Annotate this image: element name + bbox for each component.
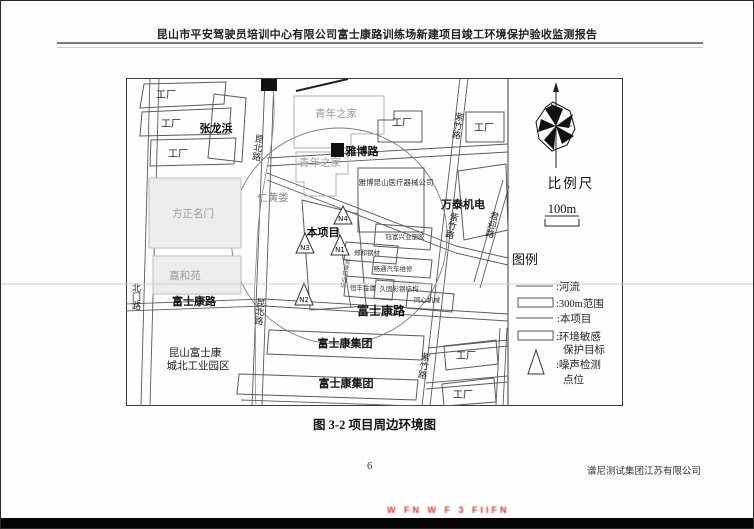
label-foxconn-group-2: 富士康集团 [319,376,374,390]
footer-company-name: 谱尼测试集团江苏有限公司 [587,463,701,477]
label-yufu-plastics: 钰富兴业塑胶 [386,232,426,241]
label-jiaheyuan: 嘉和苑 [169,269,201,282]
label-zhenghe-steel: 郑和钢材 [354,248,381,257]
north-compass-icon [536,82,575,168]
label-foxconn-park-line2: 城北工业园区 [167,360,230,372]
report-header-title: 昆山市平安驾驶员培训中心有限公司富士康路训练场新建项目竣工环境保护验收监测报告 [41,26,713,42]
scan-fold-line [1,283,754,285]
map-legend: 图例 :河流 :300m范围 :本项目 :环境敏感 保护目标 :噪声检测 点位 [512,252,605,386]
label-jiugu-steel: 久固彩钢结构 [380,284,420,293]
noise-point-n3-label: N3 [300,244,310,252]
label-yabo-road: 雅博路 [346,144,380,158]
label-wantai-electric: 万泰机电 [440,197,485,211]
report-page: 昆山市平安驾驶员培训中心有限公司富士康路训练场新建项目竣工环境保护验收监测报告 [0,0,754,529]
legend-noise-label-1: :噪声检测 [556,358,601,371]
legend-range-symbol [518,298,553,307]
figure-caption: 图 3-2 项目周边环境图 [126,414,623,433]
label-factory-se1: 工厂 [456,351,476,362]
legend-project-label: :本项目 [557,312,591,325]
label-fangzheng-mingmen: 方正名门 [172,207,214,220]
legend-river-label: :河流 [556,280,580,293]
scale-bar-distance: 100m [548,202,577,216]
label-youth-home-top: 青年之家 [315,107,357,120]
legend-noise-label-2: 点位 [563,373,584,386]
legend-sensitive-label-1: :环境敏感 [556,330,601,343]
label-tongxin-machinery: 同心机械 [414,295,441,304]
page-number: 6 [367,461,372,472]
label-factory-nw3: 工厂 [168,149,188,160]
site-map-figure: N4 N3 N1 N2 工厂 工厂 工厂 张龙浜 青年之家 工厂 工厂 青年之家… [126,78,623,406]
scale-bar-title: 比例尺 [548,176,595,191]
label-beimen-road: 北门路 [131,283,141,311]
label-medical-company: 雅博昆山医疗器械公司 [359,177,434,187]
label-factory-nw2: 工厂 [161,119,181,130]
label-project-site: 本项目 [307,225,340,239]
label-fushikang-road-right: 富士康路 [357,303,406,318]
label-zizhu-road-bottom: 紫竹路 [416,351,431,380]
bridge-block-top [261,79,277,91]
label-fushikang-road-left: 富士康路 [172,294,217,308]
legend-title: 图例 [512,252,538,267]
label-foxconn-park-line1: 昆山富士康 [169,346,222,359]
label-factory-mid: 工厂 [392,118,412,129]
label-factory-se2: 工厂 [453,390,473,401]
legend-noise-symbol [528,350,544,374]
scan-edge-bar [1,518,754,528]
legend-sensitive-symbol [518,331,553,340]
label-renhuang-river: 仁黄娄 [257,191,289,204]
label-factory-ne: 工厂 [474,123,494,134]
red-text-fragment: W FN W F 3 FIIFN [387,505,510,515]
scale-bar: 比例尺 100m [545,176,594,226]
legend-sensitive-label-2: 保护目标 [563,343,605,356]
label-foxconn-group-1: 富士康集团 [318,336,373,350]
bridge-block-yabo [331,143,344,157]
label-factory-nw1: 工厂 [156,90,176,101]
label-youth-home-2: 青年之家 [299,156,341,169]
noise-point-n4-label: N4 [338,215,348,223]
label-kunbei-road-bottom: 昆北路 [253,297,266,326]
legend-range-label: :300m范围 [556,297,604,310]
label-zhanglongbang: 张龙浜 [200,121,233,135]
header-rule [57,42,703,48]
noise-point-n1-label: N1 [335,246,345,254]
noise-point-n2-label: N2 [299,296,309,304]
label-junying-road: 君迎路 [483,210,499,240]
label-zizhu-road-mid: 紫竹路 [443,211,459,241]
label-changtong-auto: 畅通汽车维修 [374,264,414,273]
